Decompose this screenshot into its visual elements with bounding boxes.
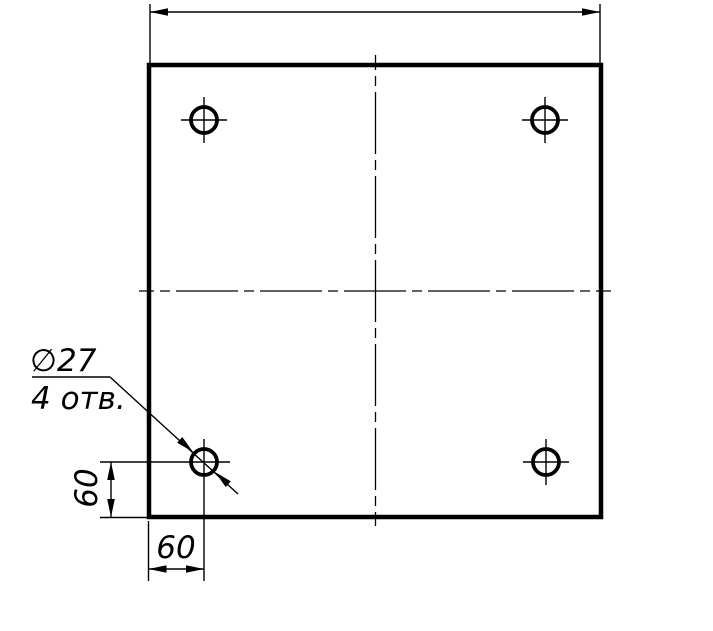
left-dimension: 60 bbox=[69, 462, 148, 518]
hole-count-label: 4 отв. bbox=[31, 381, 126, 417]
arrowhead-left bbox=[150, 8, 168, 16]
hole-diameter-label: ∅27 bbox=[30, 343, 97, 379]
technical-drawing: ∅27 4 отв. bbox=[0, 0, 713, 631]
leader-callout: ∅27 4 отв. bbox=[30, 343, 238, 494]
hole-top-right bbox=[522, 97, 568, 143]
plate-centerlines bbox=[139, 55, 611, 526]
arrowhead-left bbox=[149, 565, 167, 573]
left-dim-label: 60 bbox=[69, 468, 105, 507]
drawing-canvas: ∅27 4 отв. bbox=[0, 0, 713, 631]
arrowhead-right bbox=[186, 565, 204, 573]
arrowhead-up bbox=[107, 462, 115, 480]
arrowhead-down bbox=[107, 499, 115, 517]
arrowhead-right bbox=[582, 8, 600, 16]
bottom-dimension: 60 bbox=[149, 521, 205, 581]
hole-bottom-right bbox=[523, 439, 569, 485]
bottom-dim-label: 60 bbox=[156, 530, 195, 566]
leader-arrowhead-upper bbox=[177, 437, 193, 452]
hole-top-left bbox=[181, 97, 227, 143]
